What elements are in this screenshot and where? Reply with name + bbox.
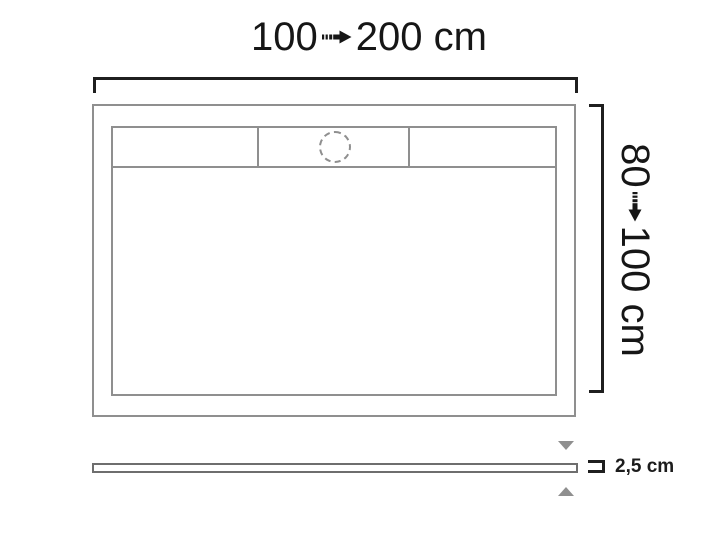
- striped-right-arrow-icon: [322, 30, 352, 44]
- height-min-value: 80: [612, 143, 658, 188]
- triangle-up-icon: [558, 487, 574, 496]
- width-min-value: 100: [251, 14, 318, 60]
- thickness-bracket: [588, 460, 605, 473]
- drain-band-bottom-line: [111, 166, 557, 168]
- drain-band-divider-right: [408, 126, 410, 168]
- thickness-label: 2,5 cm: [615, 455, 674, 478]
- height-dimension-bracket: [589, 104, 604, 393]
- striped-down-arrow-icon: [628, 192, 642, 222]
- drain-band-divider-left: [257, 126, 259, 168]
- shower-tray-dimension-diagram: 100 200 cm 80 100 cm 2,5 cm: [0, 0, 720, 540]
- dashed-circle-drain-icon: [319, 131, 351, 163]
- tray-side-view-bar: [92, 463, 578, 473]
- width-max-value: 200 cm: [356, 14, 487, 60]
- triangle-down-icon: [558, 441, 574, 450]
- height-max-value: 100 cm: [612, 226, 658, 357]
- width-dimension-bracket: [93, 77, 578, 93]
- width-dimension-label: 100 200 cm: [251, 14, 487, 60]
- height-dimension-label: 80 100 cm: [612, 140, 658, 360]
